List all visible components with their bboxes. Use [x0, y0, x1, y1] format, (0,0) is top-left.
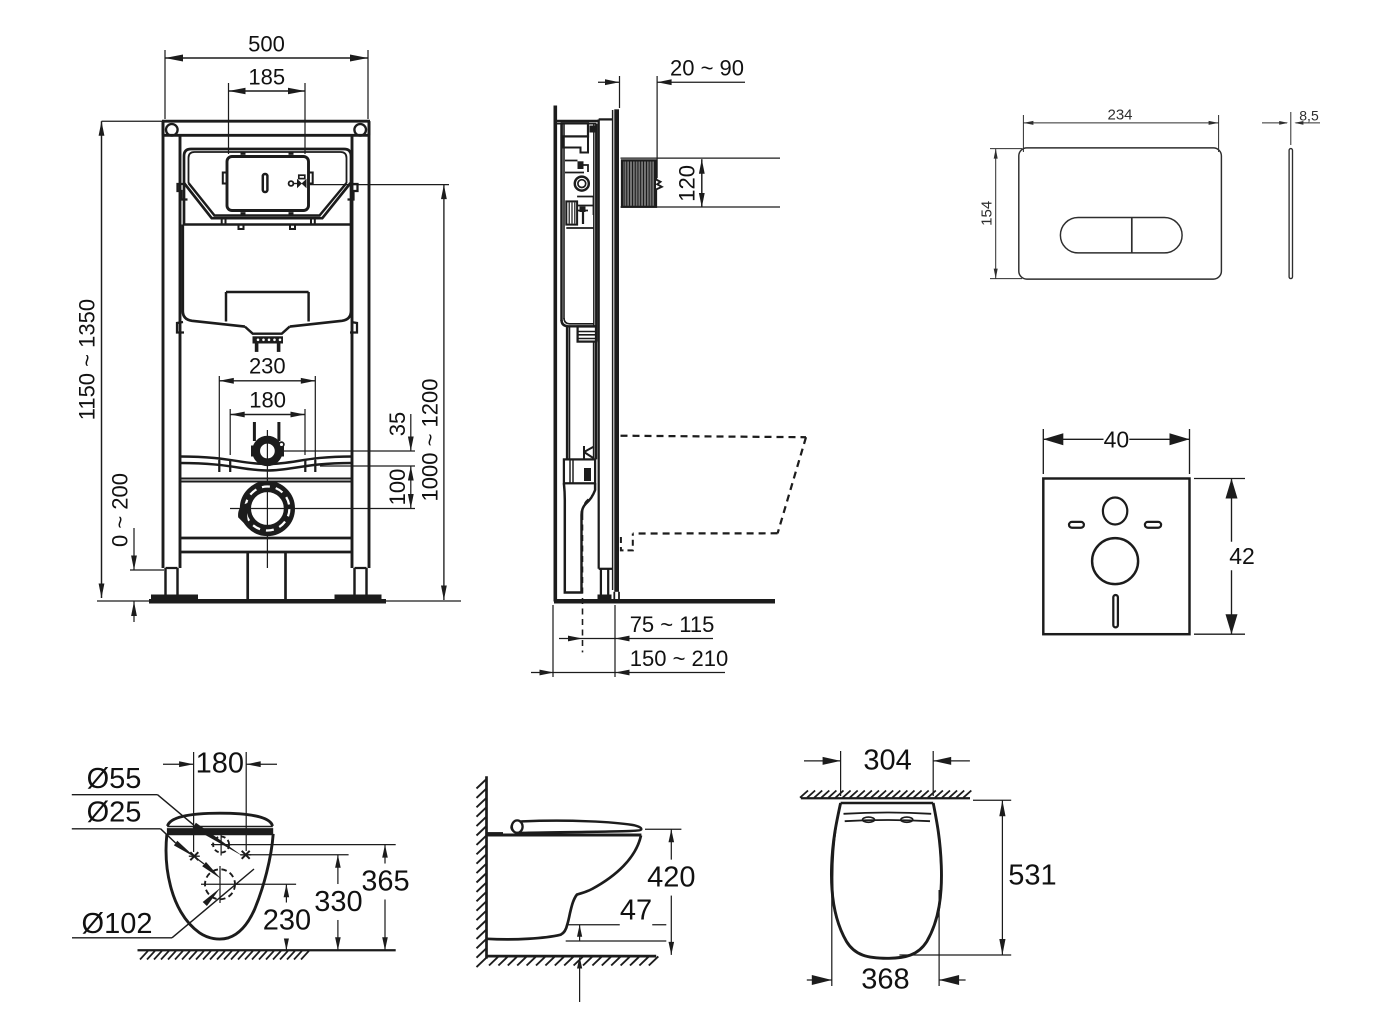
svg-text:75 ~ 115: 75 ~ 115	[630, 612, 715, 637]
svg-text:1150 ~ 1350: 1150 ~ 1350	[75, 299, 100, 420]
svg-text:304: 304	[863, 744, 911, 776]
svg-text:185: 185	[248, 65, 285, 90]
svg-text:100: 100	[385, 469, 410, 506]
svg-text:8,5: 8,5	[1299, 108, 1319, 124]
svg-text:20 ~ 90: 20 ~ 90	[670, 56, 744, 81]
svg-text:368: 368	[861, 963, 909, 995]
svg-text:154: 154	[979, 201, 996, 226]
svg-text:234: 234	[1107, 107, 1132, 124]
svg-text:47: 47	[620, 895, 652, 927]
svg-text:40: 40	[1104, 426, 1130, 452]
svg-text:120: 120	[675, 165, 700, 202]
svg-text:230: 230	[263, 905, 311, 937]
svg-text:0 ~ 200: 0 ~ 200	[108, 473, 133, 547]
svg-text:500: 500	[248, 32, 285, 57]
svg-text:Ø25: Ø25	[87, 797, 142, 829]
svg-text:Ø55: Ø55	[87, 763, 142, 795]
svg-text:1000 ~ 1200: 1000 ~ 1200	[418, 379, 443, 502]
svg-text:230: 230	[249, 354, 286, 379]
svg-text:180: 180	[249, 388, 286, 413]
svg-text:420: 420	[647, 862, 695, 894]
svg-text:42: 42	[1229, 543, 1255, 569]
svg-text:150 ~ 210: 150 ~ 210	[630, 646, 728, 671]
svg-text:35: 35	[385, 412, 410, 436]
svg-text:531: 531	[1008, 860, 1056, 892]
svg-text:330: 330	[314, 886, 362, 918]
svg-text:180: 180	[196, 747, 244, 779]
svg-text:365: 365	[361, 866, 409, 898]
svg-text:Ø102: Ø102	[82, 908, 153, 940]
